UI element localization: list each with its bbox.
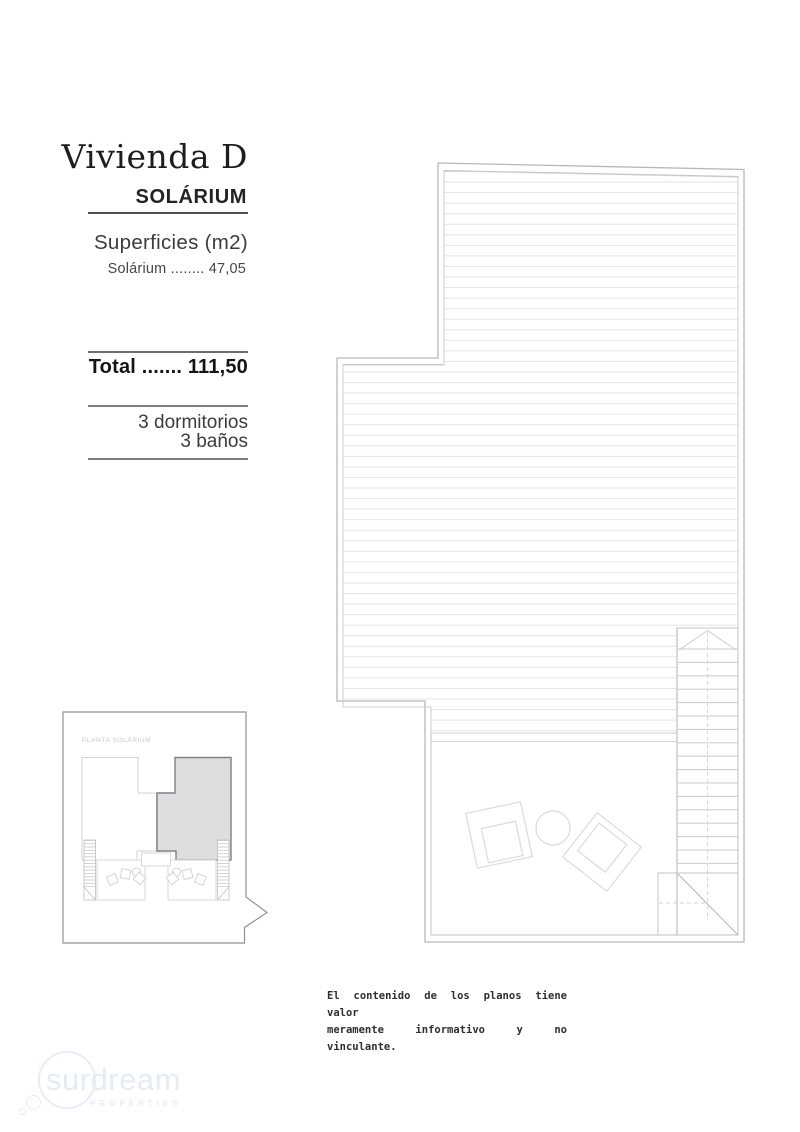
inset-stairs-left — [84, 840, 96, 900]
divider-bottom — [88, 458, 248, 460]
disclaimer-line-2: meramente informativo y no vinculante. — [327, 1022, 567, 1056]
bubble-icon — [26, 1095, 41, 1110]
divider-below-total — [88, 405, 248, 407]
disclaimer-line-1: El contenido de los planos tiene valor — [327, 988, 567, 1022]
divider-above-total — [88, 351, 248, 353]
small-bubble-icon — [19, 1108, 26, 1115]
brand-name: surdream — [46, 1064, 181, 1095]
page-title: Vivienda D — [61, 140, 248, 173]
surfaces-heading: Superficies (m2) — [94, 233, 248, 254]
inset-plan — [63, 712, 267, 943]
floorplan-page: Vivienda D SOLÁRIUM Superficies (m2) Sol… — [0, 0, 800, 1132]
brand-watermark: surdream PROPERTIES — [16, 1044, 226, 1126]
inset-plan-label: PLANTA SOLÁRIUM — [82, 738, 151, 745]
divider-strong — [88, 212, 248, 214]
inset-middle-landing — [142, 853, 171, 866]
total-surface: Total ....... 111,50 — [89, 357, 248, 377]
armchair-left — [466, 802, 532, 868]
surface-item-solarium: Solárium ........ 47,05 — [108, 262, 246, 277]
brand-tagline: PROPERTIES — [90, 1100, 182, 1108]
feature-bathrooms: 3 baños — [180, 432, 248, 451]
stair-treads — [678, 649, 738, 874]
plan-subtitle: SOLÁRIUM — [136, 187, 247, 207]
disclaimer: El contenido de los planos tiene valor m… — [327, 988, 567, 1056]
feature-bedrooms: 3 dormitorios — [138, 413, 248, 432]
info-panel: Vivienda D SOLÁRIUM Superficies (m2) Sol… — [80, 140, 248, 470]
round-table — [536, 811, 570, 845]
inset-stairs-right — [218, 840, 230, 900]
main-floorplan — [337, 163, 744, 942]
